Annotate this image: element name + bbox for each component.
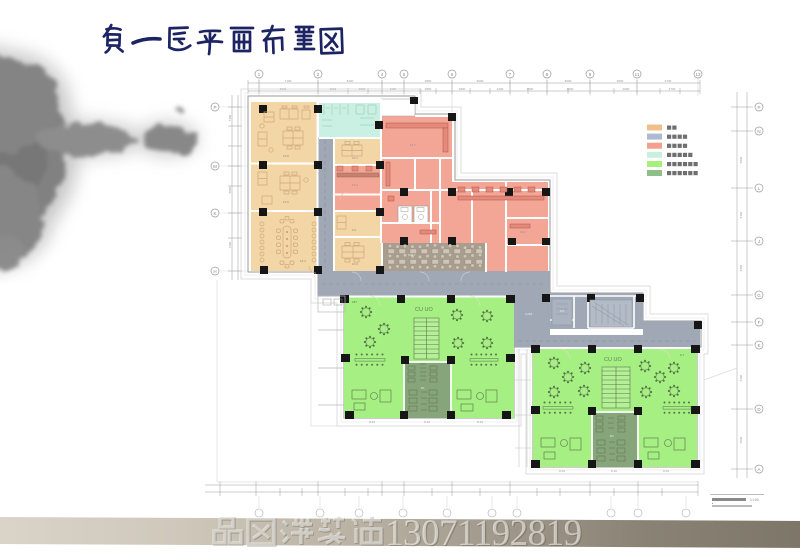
- svg-text:13071192819: 13071192819: [385, 513, 582, 553]
